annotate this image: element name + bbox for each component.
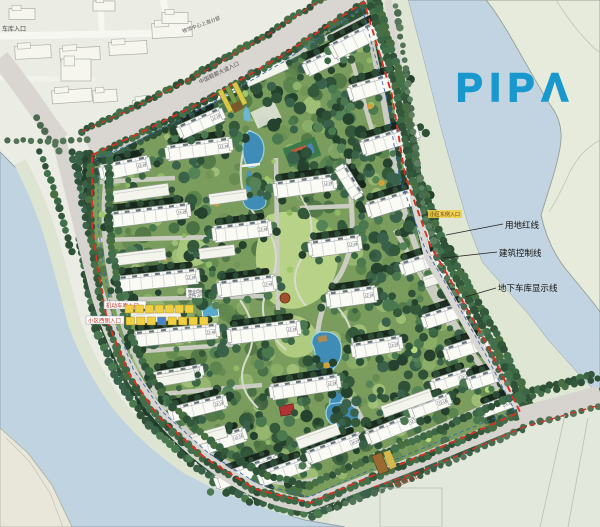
svg-text:12-1#: 12-1# [207,330,216,335]
svg-text:车库入口: 车库入口 [2,25,26,33]
svg-text:地下车库显示线: 地下车库显示线 [498,283,558,293]
svg-text:小区西侧入口: 小区西侧入口 [88,317,121,325]
svg-text:建筑控制线: 建筑控制线 [499,248,542,258]
svg-text:PIPΛ: PIPΛ [456,66,575,110]
svg-text:机动车库入口: 机动车库入口 [106,302,139,310]
svg-text:小区东侧入口: 小区东侧入口 [430,211,460,218]
svg-text:12-1#: 12-1# [187,275,196,280]
svg-text:会所 2F: 会所 2F [188,292,202,298]
svg-text:用地红线: 用地红线 [505,220,540,230]
